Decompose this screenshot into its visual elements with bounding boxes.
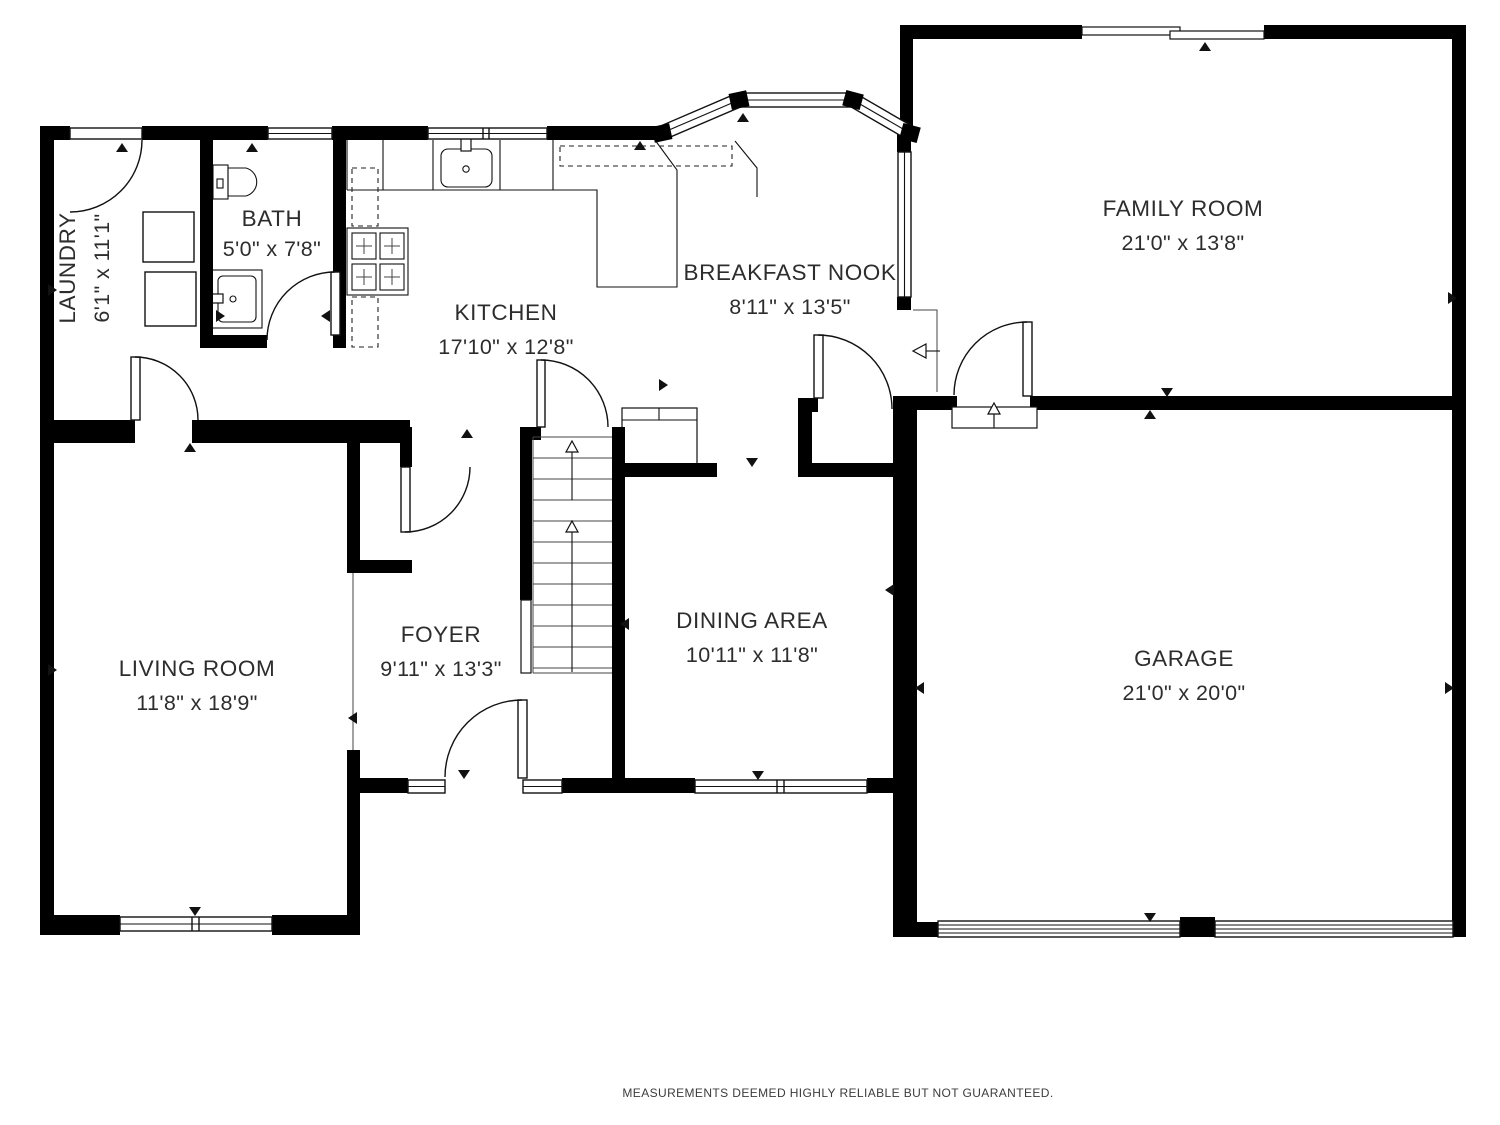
room-name: BREAKFAST NOOK	[683, 260, 896, 285]
staircase	[521, 437, 612, 673]
laundry-fixtures	[143, 212, 196, 326]
stairs-up-arrow	[566, 441, 578, 452]
room-name: KITCHEN	[455, 300, 558, 325]
room-label-laundry: LAUNDRY 6'1" x 11'1"	[55, 212, 114, 323]
room-name: BATH	[242, 206, 303, 231]
washer-icon	[143, 212, 194, 262]
garage-entry-steps	[952, 403, 1037, 428]
room-label-bath: BATH 5'0" x 7'8"	[223, 206, 321, 261]
cabinet-icon	[622, 408, 697, 465]
room-name: FAMILY ROOM	[1103, 196, 1264, 221]
kitchen-door	[537, 360, 608, 427]
room-dims: 17'10" x 12'8"	[438, 335, 573, 359]
bay-window	[652, 90, 921, 143]
room-dims: 5'0" x 7'8"	[223, 237, 321, 261]
living-room-window	[120, 917, 272, 931]
floor-plan: LAUNDRY 6'1" x 11'1" BATH 5'0" x 7'8" KI…	[0, 0, 1500, 1125]
floor-plan-page: LAUNDRY 6'1" x 11'1" BATH 5'0" x 7'8" KI…	[0, 0, 1500, 1125]
upper-cabinets-dashed	[560, 146, 732, 166]
stairs-up-arrow	[566, 521, 578, 532]
toilet-icon	[213, 165, 257, 199]
room-dims: 21'0" x 20'0"	[1122, 681, 1245, 705]
nook-side-window	[898, 152, 911, 297]
family-room-window	[1082, 27, 1264, 39]
windows	[120, 27, 1453, 937]
laundry-living-door	[131, 357, 198, 420]
bath-door	[267, 272, 340, 340]
stove-icon	[347, 228, 408, 295]
family-room-door	[954, 322, 1032, 396]
entry-arrow-icon	[913, 344, 926, 358]
room-name: LAUNDRY	[55, 212, 80, 323]
kitchen-window	[428, 128, 547, 139]
kitchen-sink-icon	[441, 134, 492, 187]
laundry-entry-door	[70, 128, 142, 212]
room-label-dining-area: DINING AREA 10'11" x 11'8"	[676, 608, 828, 667]
room-label-living-room: LIVING ROOM 11'8" x 18'9"	[119, 656, 276, 715]
nook-dining-door	[814, 335, 892, 409]
room-label-breakfast-nook: BREAKFAST NOOK 8'11" x 13'5"	[683, 260, 896, 319]
room-name: LIVING ROOM	[119, 656, 276, 681]
front-door	[445, 700, 527, 778]
room-label-garage: GARAGE 21'0" x 20'0"	[1122, 646, 1245, 705]
kitchen-counter	[347, 140, 677, 287]
front-door-sidelite	[408, 780, 562, 793]
stair-railing	[521, 600, 531, 673]
side-entry	[913, 310, 940, 392]
room-dims: 21'0" x 13'8"	[1121, 231, 1244, 255]
room-label-kitchen: KITCHEN 17'10" x 12'8"	[438, 300, 573, 359]
foyer-closet-door	[401, 467, 470, 532]
walls	[40, 25, 1466, 937]
disclaimer-text: MEASUREMENTS DEEMED HIGHLY RELIABLE BUT …	[622, 1086, 1053, 1100]
room-name: FOYER	[401, 622, 482, 647]
room-dims: 11'8" x 18'9"	[136, 691, 258, 715]
dryer-icon	[145, 272, 196, 326]
room-name: DINING AREA	[676, 608, 828, 633]
upper-cabinets-dashed	[352, 168, 378, 226]
bath-window	[268, 128, 332, 139]
room-name: GARAGE	[1134, 646, 1234, 671]
room-dims: 10'11" x 11'8"	[686, 643, 818, 667]
upper-cabinets-dashed	[352, 297, 378, 347]
dining-window	[695, 780, 867, 793]
room-label-family-room: FAMILY ROOM 21'0" x 13'8"	[1103, 196, 1264, 255]
counter-return	[735, 141, 757, 197]
room-dims: 6'1" x 11'1"	[90, 213, 114, 322]
room-dims: 8'11" x 13'5"	[729, 295, 851, 319]
room-label-foyer: FOYER 9'11" x 13'3"	[380, 622, 502, 681]
room-dims: 9'11" x 13'3"	[380, 657, 502, 681]
